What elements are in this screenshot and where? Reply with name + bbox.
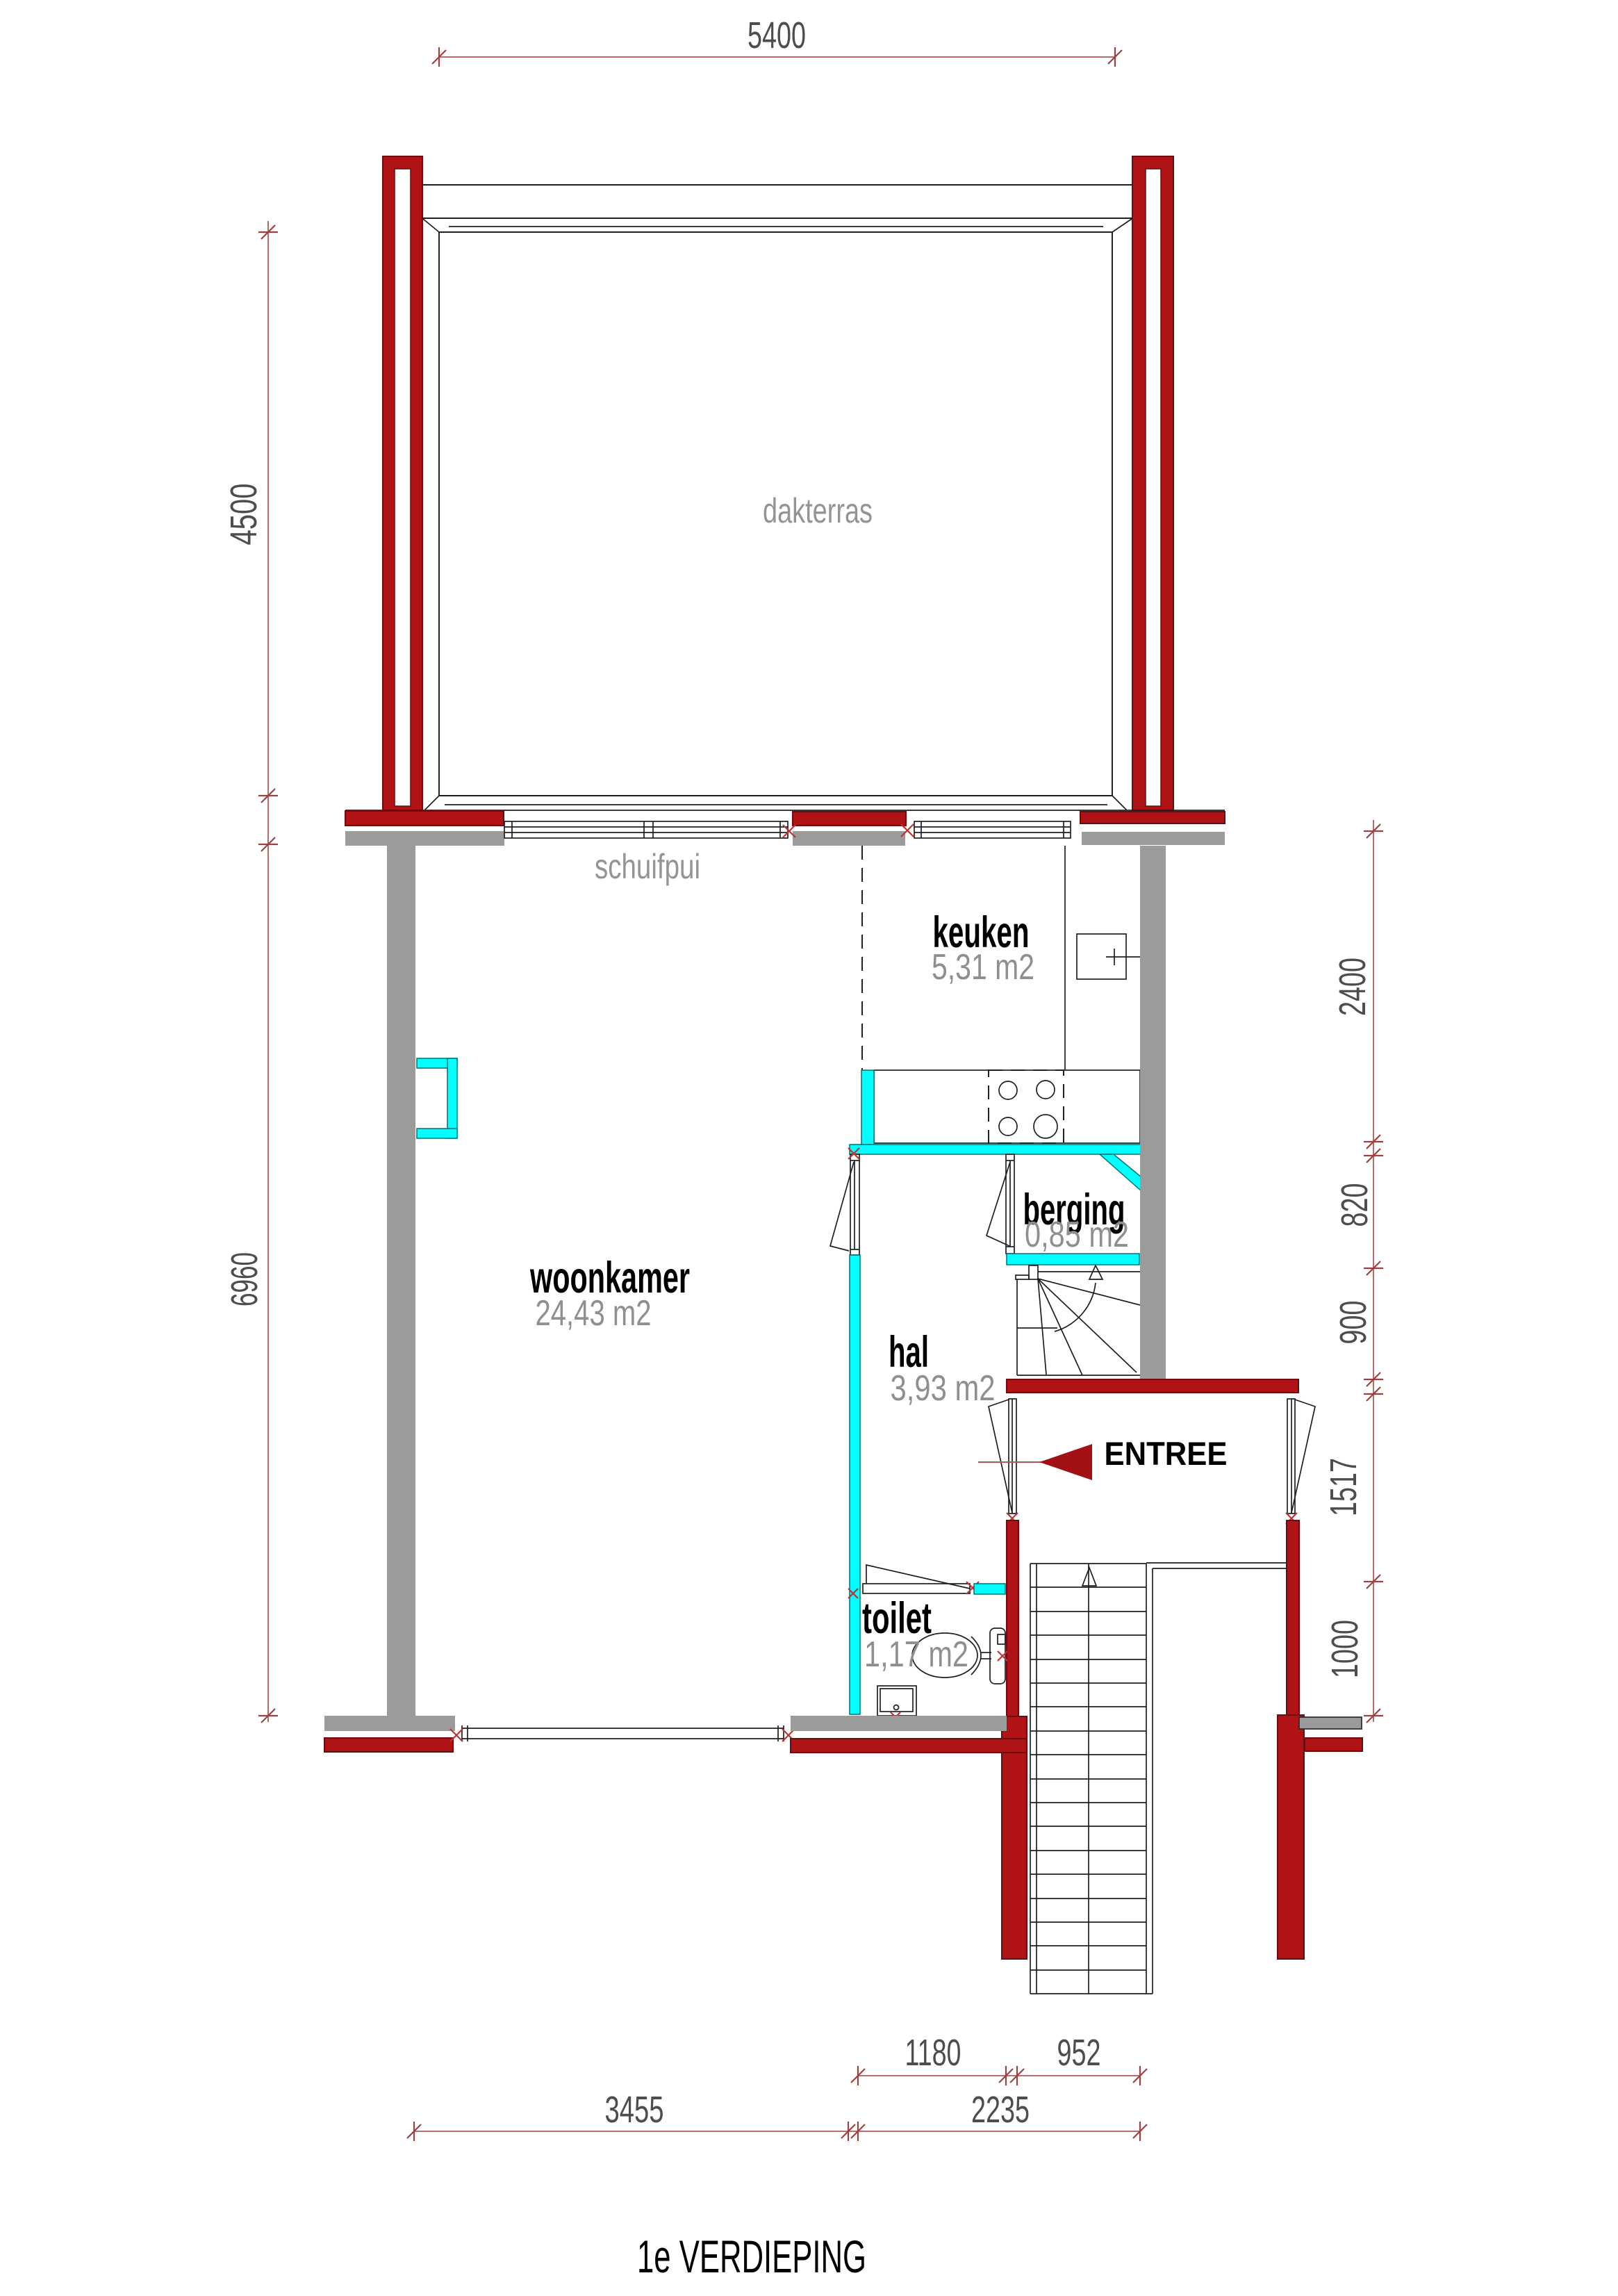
svg-text:2235: 2235 xyxy=(971,2089,1030,2131)
svg-text:24,43 m2: 24,43 m2 xyxy=(536,1293,652,1334)
svg-text:0,85 m2: 0,85 m2 xyxy=(1025,1215,1129,1255)
svg-text:1517: 1517 xyxy=(1323,1458,1364,1516)
svg-text:1000: 1000 xyxy=(1324,1620,1366,1678)
svg-text:6960: 6960 xyxy=(224,1252,265,1306)
svg-text:2400: 2400 xyxy=(1332,958,1373,1016)
svg-text:3,93 m2: 3,93 m2 xyxy=(891,1368,996,1409)
svg-text:5,31 m2: 5,31 m2 xyxy=(932,947,1034,987)
svg-text:1,17 m2: 1,17 m2 xyxy=(864,1634,968,1675)
svg-text:952: 952 xyxy=(1057,2032,1101,2074)
svg-text:4500: 4500 xyxy=(223,484,265,546)
svg-text:1e VERDIEPING: 1e VERDIEPING xyxy=(637,2231,866,2282)
svg-text:schuifpui: schuifpui xyxy=(595,847,700,886)
svg-text:5400: 5400 xyxy=(748,15,806,56)
svg-text:ENTREE: ENTREE xyxy=(1105,1435,1228,1472)
svg-text:3455: 3455 xyxy=(605,2089,664,2131)
svg-text:900: 900 xyxy=(1332,1301,1374,1345)
svg-text:dakterras: dakterras xyxy=(763,491,873,530)
svg-text:820: 820 xyxy=(1334,1183,1376,1227)
svg-text:1180: 1180 xyxy=(905,2032,961,2074)
